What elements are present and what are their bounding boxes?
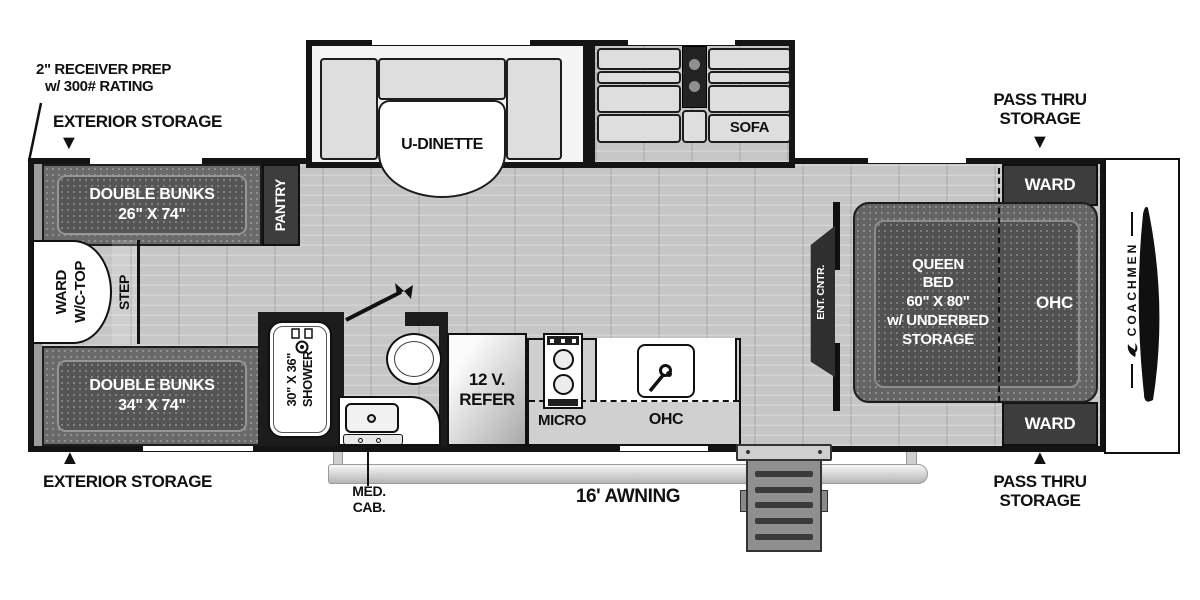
queen-bed-line1: QUEEN (912, 256, 964, 275)
entry-step-platform: STEP (112, 240, 140, 344)
step-tread (755, 534, 813, 540)
entry-steps (746, 459, 822, 552)
exterior-storage-arrow-top-icon: ▼ (59, 133, 79, 153)
sofa-back-right (708, 48, 791, 70)
shower-line2: SHOWER (301, 351, 316, 407)
refer-line2: REFER (459, 390, 515, 409)
sofa-front-left (597, 114, 681, 143)
med-cab-label: MED. CAB. (344, 484, 394, 515)
coachmen-brand-text: COACHMEN (1125, 242, 1139, 337)
bunk-bottom-line2: 34" X 74" (118, 396, 186, 416)
shower-line1: 30" X 36" (285, 353, 300, 407)
micro-label: MICRO (528, 413, 596, 430)
queen-bed-text: QUEEN BED 60" X 80" w/ UNDERBED STORAGE (863, 204, 1013, 401)
burner-icon (553, 349, 574, 370)
med-cab-line1: MED. (344, 484, 394, 500)
pantry-label: PANTRY (273, 179, 290, 231)
ward-top-label: WARD (1025, 174, 1076, 195)
window-bottom-kitchen (620, 446, 708, 451)
step-label: STEP (117, 275, 133, 310)
exterior-storage-label-top: EXTERIOR STORAGE (45, 112, 230, 131)
ohc-bedroom-wrap: OHC (1013, 204, 1096, 401)
refrigerator: 12 V. REFER (447, 333, 527, 446)
sofa-console (682, 46, 707, 108)
queen-bed-text-wrap: QUEEN BED 60" X 80" w/ UNDERBED STORAGE … (855, 204, 1096, 401)
sofa-console-front (682, 110, 707, 143)
logo-rule (1131, 212, 1133, 236)
toilet-seat (394, 341, 434, 377)
shower-enclosure: 30" X 36" SHOWER (258, 312, 344, 446)
step-tread (755, 502, 813, 508)
shower-pan-inner: 30" X 36" SHOWER (273, 326, 327, 433)
bunk-bottom-mattress: DOUBLE BUNKS 34" X 74" (57, 360, 247, 432)
awning-label: 16' AWNING (528, 486, 728, 507)
med-cab-line2: CAB. (344, 500, 394, 516)
bunk-top-line1: DOUBLE BUNKS (89, 185, 214, 205)
faucet-icon (367, 414, 376, 423)
ent-cntr-label: ENT. CNTR. (815, 265, 828, 320)
bolt-icon (746, 450, 750, 454)
refer-line1: 12 V. (469, 370, 505, 389)
dinette-bench-right (506, 58, 562, 160)
queen-bed: QUEEN BED 60" X 80" w/ UNDERBED STORAGE … (853, 202, 1098, 403)
sofa-label: SOFA (730, 120, 769, 137)
coachmen-dove-logo-icon (1126, 342, 1139, 358)
logo-rule (1131, 364, 1133, 388)
queen-bed-line4: w/ UNDERBED (887, 312, 989, 331)
bunk-bottom-line1: DOUBLE BUNKS (89, 376, 214, 396)
receiver-prep-line2: w/ 300# RATING (36, 79, 171, 96)
bunk-top-mattress: DOUBLE BUNKS 26" X 74" (57, 175, 247, 235)
dinette-bench-back (378, 58, 506, 100)
pass-thru-storage-label-top: PASS THRU STORAGE (985, 90, 1095, 128)
window-bottom-left (143, 446, 253, 451)
step-tread (755, 518, 813, 524)
exterior-storage-label-bottom: EXTERIOR STORAGE (30, 472, 225, 491)
burner-icon (553, 374, 574, 395)
ohc-bedroom-label: OHC (1036, 292, 1073, 313)
toilet (386, 333, 442, 385)
stove-cooktop (543, 333, 583, 409)
bunk-top-line2: 26" X 74" (118, 205, 186, 225)
u-dinette-label: U-DINETTE (401, 136, 483, 154)
receiver-prep-callout: 2" RECEIVER PREP w/ 300# RATING (36, 62, 171, 96)
pass-thru-bottom-line1: PASS THRU (985, 472, 1095, 491)
pass-thru-top-line1: PASS THRU (985, 90, 1095, 109)
step-rail-right (821, 490, 828, 512)
receiver-prep-line1: 2" RECEIVER PREP (36, 62, 171, 79)
awning-bar (328, 464, 928, 484)
queen-bed-line5: STORAGE (902, 331, 974, 350)
ward-wc-top-line1: WARD (54, 270, 71, 314)
bunk-top: DOUBLE BUNKS 26" X 74" (42, 164, 262, 246)
queen-bed-line2: BED (923, 274, 954, 293)
stove-controls (547, 336, 579, 345)
ward-wc-top: WARD W/C-TOP (32, 240, 112, 344)
pass-thru-bottom-line2: STORAGE (985, 491, 1095, 510)
sofa-lumbar-left (597, 71, 681, 84)
front-cap: COACHMEN (1104, 158, 1180, 454)
window-sofa-slide (628, 40, 735, 45)
shower-pan: 30" X 36" SHOWER (268, 321, 332, 438)
dinette-table: U-DINETTE (378, 100, 506, 198)
vanity-drawer (343, 434, 403, 445)
ward-bottom: WARD (1002, 402, 1098, 446)
sofa-seat-right (708, 85, 791, 113)
ward-top: WARD (1002, 164, 1098, 206)
step-tread (755, 471, 813, 477)
bathroom-sink (345, 403, 399, 433)
faucet-icon (659, 364, 672, 377)
ohc-kitchen-label: OHC (628, 411, 704, 429)
stove-front (548, 399, 578, 406)
dinette-bench-left (320, 58, 378, 160)
coachmen-logo: COACHMEN (1124, 205, 1140, 395)
bunk-bottom: DOUBLE BUNKS 34" X 74" (42, 346, 262, 446)
ward-wc-top-line2: W/C-TOP (73, 261, 90, 323)
pass-thru-arrow-top-icon: ▼ (1030, 132, 1050, 152)
front-cap-blade-icon (1106, 160, 1177, 451)
bedroom-dashed-divider (998, 168, 1000, 402)
pass-thru-top-line2: STORAGE (985, 109, 1095, 128)
sofa-lumbar-right (708, 71, 791, 84)
sofa-seat-left (597, 85, 681, 113)
window-top-right (868, 158, 966, 163)
cup-holder-icon (689, 59, 700, 70)
cup-holder-icon (689, 81, 700, 92)
pantry: PANTRY (262, 164, 300, 246)
knob-icon (376, 438, 381, 443)
dinette-slideout: U-DINETTE (306, 40, 589, 168)
ward-bottom-label: WARD (1025, 413, 1076, 434)
sofa-slideout: SOFA (589, 40, 795, 168)
sofa-front-right: SOFA (708, 114, 791, 143)
sofa-back-left (597, 48, 681, 70)
step-tread (755, 487, 813, 493)
floorplan-canvas: 2" RECEIVER PREP w/ 300# RATING EXTERIOR… (0, 0, 1200, 600)
window-dinette-slide (372, 40, 530, 45)
kitchen-sink (637, 344, 695, 398)
queen-bed-line3: 60" X 80" (906, 293, 969, 312)
knob-icon (358, 438, 363, 443)
pass-thru-storage-label-bottom: PASS THRU STORAGE (985, 472, 1095, 510)
bolt-icon (818, 450, 822, 454)
bathroom-vanity (338, 396, 441, 446)
